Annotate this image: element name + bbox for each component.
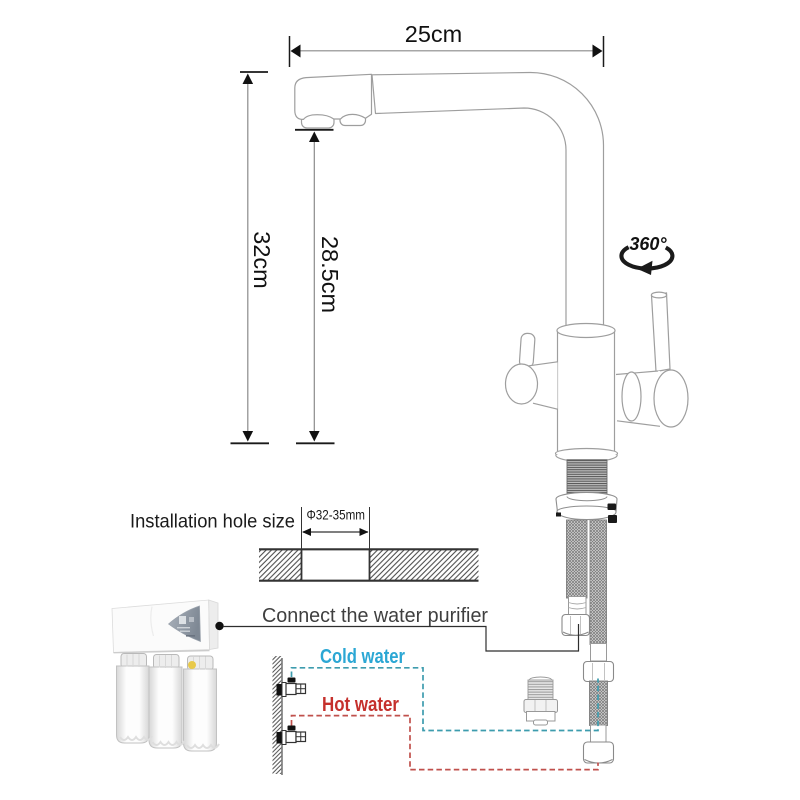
svg-text:32cm: 32cm bbox=[249, 231, 275, 288]
svg-text:Installation hole size: Installation hole size bbox=[130, 511, 295, 533]
svg-text:28.5cm: 28.5cm bbox=[317, 236, 343, 313]
svg-text:Cold water: Cold water bbox=[320, 645, 405, 668]
svg-text:Φ32-35mm: Φ32-35mm bbox=[307, 508, 366, 523]
svg-text:Hot water: Hot water bbox=[322, 693, 399, 716]
svg-text:25cm: 25cm bbox=[405, 21, 462, 47]
svg-text:360°: 360° bbox=[629, 234, 667, 254]
svg-text:Connect the water purifier: Connect the water purifier bbox=[262, 605, 488, 627]
